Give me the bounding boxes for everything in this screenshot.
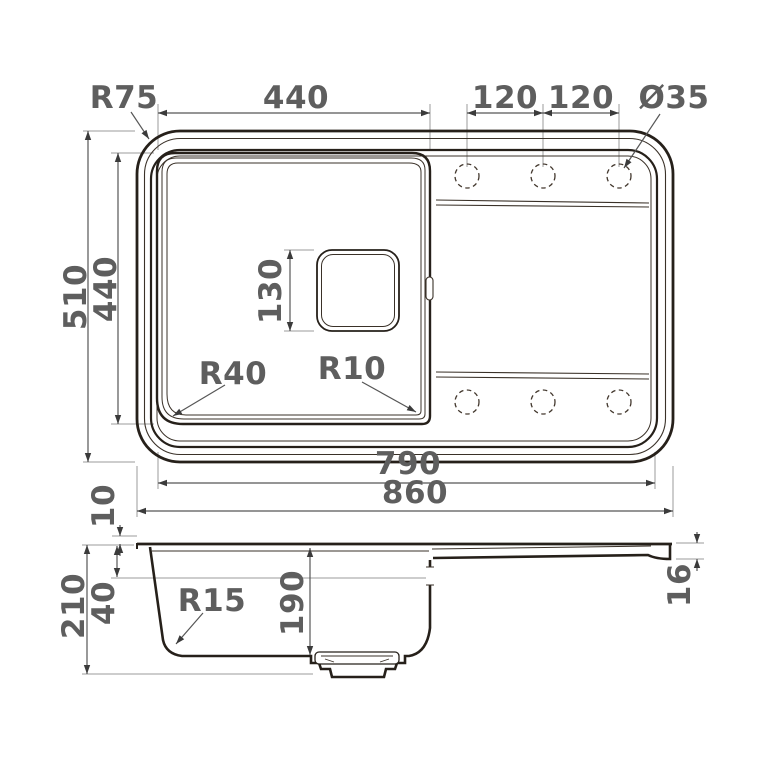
basin-area-outline — [151, 150, 657, 447]
dim-bowl-radius-bottom-right: R10 — [318, 351, 416, 412]
drain-square-inner — [322, 255, 395, 327]
top-view — [137, 131, 673, 462]
dim-label-r15: R15 — [178, 583, 247, 619]
dim-label-overall-width: 860 — [382, 475, 448, 511]
dim-hole-diameter: Ø35 — [624, 80, 710, 168]
tap-hole — [607, 390, 631, 414]
drainer-slope-line — [432, 546, 651, 549]
dim-label-drainer-thickness: 16 — [662, 563, 698, 607]
dim-bowl-radius-bottom-left: R40 — [173, 356, 267, 416]
tap-hole — [455, 164, 479, 188]
overflow-slot-gap — [426, 567, 434, 585]
dim-bowl-inner-depth: 190 — [275, 548, 313, 655]
tap-hole — [607, 164, 631, 188]
drain-square — [317, 250, 399, 331]
dim-label-hole-diameter: Ø35 — [639, 80, 710, 116]
drainer-groove-lines — [436, 200, 649, 379]
tap-hole — [531, 390, 555, 414]
dim-overall-width: 860 — [137, 475, 673, 514]
rim-inner-line — [145, 139, 666, 455]
sink-technical-drawing: R75 440 120 120 Ø35 510 — [0, 0, 768, 768]
dim-label-bowl-width: 440 — [263, 80, 329, 116]
dim-corner-radius: R75 — [90, 80, 159, 139]
dim-drain-size: 130 — [253, 250, 293, 331]
dim-label-ledge-depth: 40 — [86, 581, 122, 625]
dim-bowl-width: 440 — [158, 80, 430, 116]
strainer-cap — [315, 652, 399, 664]
dim-label-r40: R40 — [199, 356, 268, 392]
tap-hole — [455, 390, 479, 414]
tap-hole — [531, 164, 555, 188]
overflow-notch — [426, 277, 433, 300]
dim-label-hole-spacing-left: 120 — [472, 80, 538, 116]
dim-label-rim-height: 10 — [86, 484, 122, 528]
dim-label-r10: R10 — [318, 351, 387, 387]
outer-outline — [137, 131, 673, 462]
dim-label-bowl-inner-depth: 190 — [275, 570, 311, 636]
dim-label-bowl-depth: 440 — [88, 256, 124, 322]
dim-label-drain-size: 130 — [253, 258, 289, 324]
basin-area-inner-line — [157, 156, 651, 441]
dim-label-corner-radius: R75 — [90, 80, 159, 116]
dim-bowl-depth: 440 — [88, 153, 124, 424]
dim-ledge-depth: 40 — [86, 546, 122, 625]
dim-label-hole-spacing-right: 120 — [548, 80, 614, 116]
extension-lines — [82, 104, 704, 674]
dim-bottom-radius: R15 — [176, 583, 246, 644]
drawing-canvas: R75 440 120 120 Ø35 510 — [0, 0, 768, 768]
